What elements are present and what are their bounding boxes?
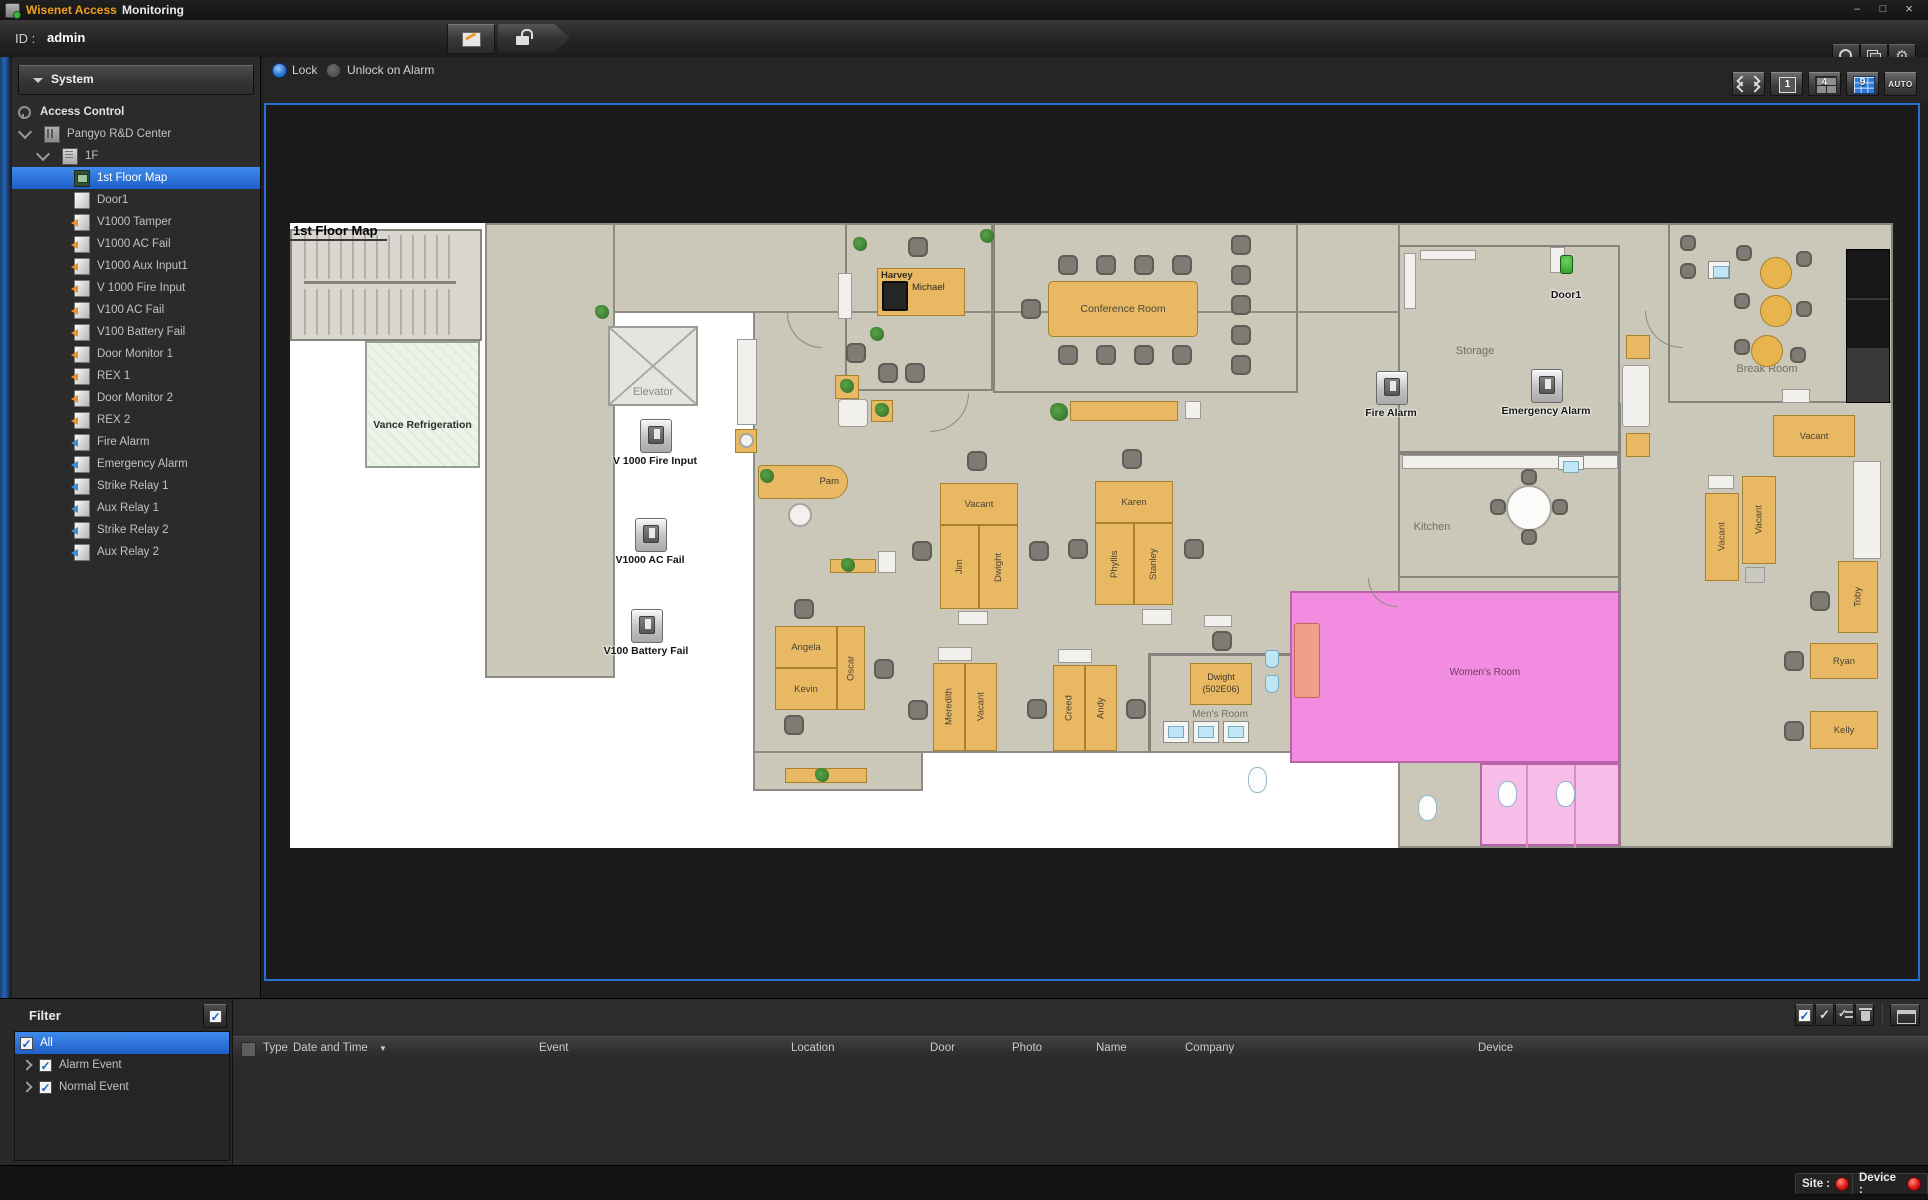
chair	[1784, 651, 1804, 671]
popup-window-icon	[1897, 1010, 1916, 1024]
quad-view-button[interactable]: 4	[1808, 72, 1841, 96]
tree-item-output[interactable]: Aux Relay 2	[12, 541, 260, 563]
toilet	[1556, 781, 1575, 807]
column-header[interactable]: Name	[1096, 1042, 1127, 1054]
tree-item-output[interactable]: Strike Relay 2	[12, 519, 260, 541]
site-status-red-dot	[1835, 1177, 1849, 1191]
desk-name: Angela	[775, 626, 837, 668]
title-brand: Wisenet Access	[26, 3, 117, 17]
chair	[1134, 345, 1154, 365]
filter-label: Normal Event	[59, 1081, 129, 1093]
tree-item-input[interactable]: V1000 Tamper	[12, 211, 260, 233]
sofa	[1622, 365, 1650, 427]
application-window: Wisenet Access Monitoring – □ × ID : adm…	[0, 0, 1928, 1200]
chair	[1096, 255, 1116, 275]
title-app: Monitoring	[122, 3, 184, 17]
fullscreen-button[interactable]	[1732, 72, 1765, 96]
chair	[1521, 529, 1537, 545]
view-9-label: 9	[1847, 76, 1878, 88]
side-table	[1626, 433, 1650, 457]
furniture	[838, 273, 852, 319]
chair	[1680, 263, 1696, 279]
delete-button[interactable]	[1855, 1004, 1874, 1026]
desk-cluster: Creed Andy	[1053, 665, 1117, 751]
sink	[1708, 261, 1730, 279]
furniture	[1142, 609, 1172, 625]
tree-item-floor[interactable]: 1F	[12, 145, 260, 167]
lock-radio[interactable]	[272, 63, 287, 78]
tree-root-access-control[interactable]: Access Control	[12, 101, 260, 123]
desk-name: Meredith	[933, 663, 965, 751]
chair	[1231, 325, 1251, 345]
chair	[1736, 245, 1752, 261]
desk-name: Vacant	[1773, 415, 1855, 457]
input-door-icon	[74, 214, 90, 231]
vending-machines	[1846, 249, 1890, 403]
sink	[1193, 721, 1219, 743]
site-status-label: Site :	[1802, 1178, 1830, 1190]
device-fire-input-icon[interactable]	[640, 419, 672, 453]
device-label: V100 Battery Fail	[581, 645, 711, 657]
toilet	[1498, 781, 1517, 807]
device-label: Fire Alarm	[1326, 407, 1456, 419]
desk-cluster: Meredith Vacant	[933, 663, 997, 751]
output-door-icon	[74, 456, 90, 473]
plant	[1050, 403, 1068, 421]
input-door-icon	[74, 236, 90, 253]
tree-item-input[interactable]: V100 Battery Fail	[12, 321, 260, 343]
tree-label: V1000 Tamper	[97, 216, 172, 228]
furniture	[958, 611, 988, 625]
desk-name: Michael	[912, 282, 945, 293]
chair	[1796, 301, 1812, 317]
monitor	[882, 281, 908, 311]
sidebar: System Access Control Pangyo R&D Center …	[12, 57, 261, 998]
column-header[interactable]: Company	[1185, 1042, 1234, 1054]
toilet	[1248, 767, 1267, 793]
column-header[interactable]: Device	[1478, 1042, 1513, 1054]
system-dropdown-label: System	[51, 72, 94, 86]
chair	[1734, 293, 1750, 309]
break-table	[1760, 257, 1792, 289]
fixture	[739, 433, 754, 448]
floor-area	[485, 223, 615, 678]
checkbox-checked[interactable]: ✓	[39, 1059, 52, 1072]
chair	[1552, 499, 1568, 515]
tree-label: Aux Relay 1	[97, 502, 159, 514]
chevron-expand-icon[interactable]	[36, 147, 50, 161]
single-view-button[interactable]: 1	[1770, 72, 1803, 96]
chair	[967, 451, 987, 471]
input-door-icon	[74, 258, 90, 275]
checkbox-checked[interactable]: ✓	[39, 1081, 52, 1094]
door-icon	[74, 192, 90, 209]
desk-name: Phyllis	[1095, 523, 1134, 605]
chair	[874, 659, 894, 679]
plant	[980, 229, 994, 243]
furniture	[1782, 389, 1810, 403]
wom-room-label: Women's Room	[1425, 667, 1545, 678]
desk-name: Karen	[1095, 481, 1173, 523]
check-all-button[interactable]: ✓	[1795, 1004, 1814, 1026]
tree-item-door1[interactable]: Door1	[12, 189, 260, 211]
chair	[1027, 699, 1047, 719]
tree-label: Door Monitor 2	[97, 392, 173, 404]
view-4-label: 4	[1809, 76, 1840, 88]
select-all-checkbox[interactable]	[241, 1042, 256, 1057]
chair	[1796, 251, 1812, 267]
desk-name: Vacant	[1705, 493, 1739, 581]
chevron-expand-icon[interactable]	[18, 125, 32, 139]
unlock-on-alarm-radio[interactable]	[326, 63, 341, 78]
tree-label: Emergency Alarm	[97, 458, 188, 470]
chair	[1231, 355, 1251, 375]
checkbox-checked[interactable]: ✓	[20, 1037, 33, 1050]
chair	[908, 237, 928, 257]
furniture	[1708, 475, 1734, 489]
filter-item-alarm[interactable]: ✓Alarm Event	[15, 1054, 229, 1076]
map-edit-button[interactable]	[447, 24, 495, 54]
column-header[interactable]: Photo	[1012, 1042, 1042, 1054]
chair	[1058, 345, 1078, 365]
chair	[1134, 255, 1154, 275]
plant	[841, 558, 855, 572]
storage-label: Storage	[1440, 345, 1510, 357]
tree-item-input[interactable]: V1000 Aux Input1	[12, 255, 260, 277]
chair	[1231, 235, 1251, 255]
acknowledge-button[interactable]: ✓	[1815, 1004, 1834, 1026]
separator	[1882, 1004, 1883, 1026]
checkbox-icon: ✓	[209, 1010, 222, 1023]
chair	[905, 363, 925, 383]
chair	[1068, 539, 1088, 559]
event-table-body[interactable]	[233, 1061, 1928, 1161]
output-door-icon	[74, 522, 90, 539]
column-header[interactable]: Date and Time	[293, 1042, 368, 1054]
chair	[1231, 295, 1251, 315]
tree-label: Strike Relay 2	[97, 524, 169, 536]
desk-name: Stanley	[1134, 523, 1173, 605]
device-battery-fail-icon[interactable]	[631, 609, 663, 643]
minimize-button[interactable]: –	[1846, 1, 1868, 17]
desk-name: Kevin	[775, 668, 837, 710]
filter-apply-button[interactable]: ✓	[203, 1004, 227, 1028]
break-table	[1760, 295, 1792, 327]
tree-label: 1st Floor Map	[97, 172, 167, 184]
trash-icon	[1861, 1011, 1870, 1021]
chair	[878, 363, 898, 383]
chair	[1122, 449, 1142, 469]
close-button[interactable]: ×	[1898, 1, 1920, 17]
device-label: Emergency Alarm	[1481, 405, 1611, 417]
tree-item-output[interactable]: Emergency Alarm	[12, 453, 260, 475]
side-table	[1626, 335, 1650, 359]
map-edit-icon	[462, 32, 481, 47]
room-label: Vance Refrigeration	[367, 419, 478, 431]
room-label: Conference Room	[1080, 303, 1165, 315]
break-table	[1751, 335, 1783, 367]
checkbox-icon: ✓	[1798, 1009, 1811, 1022]
nine-view-button[interactable]: 9	[1846, 72, 1879, 96]
device-tree: Access Control Pangyo R&D Center 1F 1st …	[12, 101, 260, 563]
tree-item-input[interactable]: REX 1	[12, 365, 260, 387]
input-door-icon	[74, 280, 90, 297]
sort-desc-icon[interactable]: ▼	[379, 1044, 387, 1053]
app-icon	[5, 3, 20, 18]
device-ac-fail-icon[interactable]	[635, 518, 667, 552]
device-fire-alarm-icon[interactable]	[1376, 371, 1408, 405]
kitchen-label: Kitchen	[1402, 521, 1462, 533]
desk-name: Vacant	[1742, 476, 1776, 564]
output-door-icon	[74, 434, 90, 451]
event-table: Type Date and Time ▼ Event Location Door…	[232, 999, 1928, 1166]
tree-item-output[interactable]: Strike Relay 1	[12, 475, 260, 497]
desk-name: (502E06)	[1191, 684, 1251, 694]
mens-room-label: Men's Room	[1165, 709, 1275, 720]
tree-label: Fire Alarm	[97, 436, 149, 448]
tree-label: 1F	[85, 150, 98, 162]
plant	[870, 327, 884, 341]
chair	[1734, 339, 1750, 355]
desk-name: Oscar	[837, 626, 865, 710]
chair	[794, 599, 814, 619]
event-panel: Filter ✓ ✓All ✓Alarm Event ✓Normal Event…	[0, 998, 1928, 1166]
chair	[784, 715, 804, 735]
floor-icon	[62, 148, 78, 165]
desk-name: Toby	[1838, 561, 1878, 633]
sofa	[1294, 623, 1320, 698]
input-door-icon	[74, 324, 90, 341]
key-icon	[18, 106, 31, 119]
output-door-icon	[74, 478, 90, 495]
chair	[1521, 469, 1537, 485]
tree-item-site[interactable]: Pangyo R&D Center	[12, 123, 260, 145]
chair	[1172, 255, 1192, 275]
chair	[1126, 699, 1146, 719]
device-label: V1000 AC Fail	[585, 554, 715, 566]
tree-label: REX 1	[97, 370, 130, 382]
toilet	[1418, 795, 1437, 821]
device-status-label: Device :	[1859, 1172, 1902, 1196]
tree-item-input[interactable]: Door Monitor 1	[12, 343, 260, 365]
input-door-icon	[74, 368, 90, 385]
event-table-header[interactable]: Type Date and Time ▼ Event Location Door…	[233, 1036, 1928, 1062]
device-label: V 1000 Fire Input	[590, 455, 720, 467]
chair	[1680, 235, 1696, 251]
device-emergency-alarm-icon[interactable]	[1531, 369, 1563, 403]
unlock-tool-button[interactable]	[498, 24, 570, 52]
status-bar: Site : Device :	[0, 1165, 1928, 1200]
input-door-icon	[74, 390, 90, 407]
desk-cluster: Vacant Jim Dwight	[940, 483, 1018, 609]
output-door-icon	[74, 544, 90, 561]
chair	[1096, 345, 1116, 365]
chair	[1184, 539, 1204, 559]
furniture	[1058, 649, 1092, 663]
tree-item-input[interactable]: Door Monitor 2	[12, 387, 260, 409]
tree-label: Pangyo R&D Center	[67, 128, 171, 140]
furniture	[938, 647, 972, 661]
device-status: Device :	[1852, 1173, 1928, 1195]
filter-label: Alarm Event	[59, 1059, 122, 1071]
shelf	[1404, 253, 1416, 309]
tree-label: V1000 Aux Input1	[97, 260, 188, 272]
title-underline	[290, 239, 387, 241]
map-toolbar: Lock Unlock on Alarm 1 4 9 AUTO	[262, 57, 1928, 103]
desk-name: Vacant	[965, 663, 997, 751]
filter-item-normal[interactable]: ✓Normal Event	[15, 1076, 229, 1098]
maximize-button[interactable]: □	[1872, 1, 1894, 17]
kitchen-table	[1506, 485, 1552, 531]
check-list-button[interactable]: ✓	[1835, 1004, 1854, 1026]
output-door-icon	[74, 500, 90, 517]
furniture	[878, 551, 896, 573]
id-value: admin	[47, 30, 85, 45]
plant	[840, 379, 854, 393]
building-icon	[44, 126, 60, 143]
conference-table: Conference Room	[1048, 281, 1198, 337]
room-elevator: Elevator	[608, 326, 698, 406]
desk-office: Harvey Michael	[877, 268, 965, 316]
tree-label: V100 AC Fail	[97, 304, 164, 316]
urinal	[1265, 650, 1279, 668]
auto-label: AUTO	[1885, 80, 1916, 89]
filter-label: All	[40, 1037, 53, 1049]
urinal	[1265, 675, 1279, 693]
stairs	[290, 229, 482, 341]
input-door-icon	[74, 412, 90, 429]
desk-name: Kelly	[1810, 711, 1878, 749]
device-status-red-dot	[1907, 1177, 1921, 1191]
tree-label: Aux Relay 2	[97, 546, 159, 558]
site-status: Site :	[1795, 1173, 1856, 1195]
plant	[760, 469, 774, 483]
desk-name: Dwight	[979, 525, 1018, 609]
plant	[815, 768, 829, 782]
input-door-icon	[74, 346, 90, 363]
wall	[1148, 653, 1151, 753]
input-door-icon	[74, 302, 90, 319]
map-viewport[interactable]: 1st Floor Map Vance Refrigeration Elevat…	[264, 103, 1920, 981]
top-toolbar: ID : admin ⚙	[0, 20, 1928, 58]
tree-label: V100 Battery Fail	[97, 326, 185, 338]
desk-cluster: Angela Kevin Oscar	[775, 626, 865, 710]
filter-title: Filter	[29, 1008, 61, 1023]
sofa	[838, 399, 868, 427]
furniture	[1185, 401, 1201, 419]
sink	[1163, 721, 1189, 743]
plant	[853, 237, 867, 251]
chair	[1490, 499, 1506, 515]
desk-name: Vacant	[940, 483, 1018, 525]
tree-item-input[interactable]: V1000 AC Fail	[12, 233, 260, 255]
desk-name: Andy	[1085, 665, 1117, 751]
door1-status-green	[1560, 255, 1573, 274]
chevron-right-icon[interactable]	[21, 1059, 32, 1070]
tree-item-floor-map[interactable]: 1st Floor Map	[12, 167, 260, 189]
view-1-label: 1	[1780, 79, 1795, 90]
sink	[1223, 721, 1249, 743]
chair	[1790, 347, 1806, 363]
id-label: ID :	[15, 31, 35, 46]
tree-label: Door1	[97, 194, 128, 206]
cabinet	[737, 339, 757, 425]
cabinet	[1853, 461, 1881, 559]
desk-name: Ryan	[1810, 643, 1878, 679]
chair	[1058, 255, 1078, 275]
tree-item-output[interactable]: Fire Alarm	[12, 431, 260, 453]
desk-office: Dwight (502E06)	[1190, 663, 1252, 705]
filter-item-all[interactable]: ✓All	[15, 1032, 229, 1054]
chair	[788, 503, 812, 527]
system-dropdown[interactable]: System	[18, 65, 254, 95]
desk-name: Harvey	[881, 270, 913, 281]
tree-label: Strike Relay 1	[97, 480, 169, 492]
desk-name: Creed	[1053, 665, 1085, 751]
plant	[875, 403, 889, 417]
chair	[846, 343, 866, 363]
tree-item-input[interactable]: REX 2	[12, 409, 260, 431]
title-bar: Wisenet Access Monitoring – □ ×	[0, 0, 1928, 21]
room-vance-refrigeration: Vance Refrigeration	[365, 341, 480, 468]
chair	[1810, 591, 1830, 611]
desk-name: Jim	[940, 525, 979, 609]
bench	[1070, 401, 1178, 421]
tree-label: REX 2	[97, 414, 130, 426]
chair	[1784, 721, 1804, 741]
column-header[interactable]: Door	[930, 1042, 955, 1054]
lock-radio-label: Lock	[292, 63, 317, 77]
tree-item-input[interactable]: V100 AC Fail	[12, 299, 260, 321]
auto-sequence-button[interactable]: AUTO	[1884, 72, 1917, 96]
chevron-right-icon[interactable]	[21, 1081, 32, 1092]
tree-label: V 1000 Fire Input	[97, 282, 185, 294]
unlock-on-alarm-label: Unlock on Alarm	[347, 63, 434, 77]
kitchen-counter	[1402, 455, 1618, 469]
column-header[interactable]: Type	[263, 1042, 288, 1054]
furniture	[1204, 615, 1232, 627]
chair	[1231, 265, 1251, 285]
open-padlock-icon	[516, 36, 529, 45]
chevron-down-icon	[33, 78, 43, 88]
plant	[595, 305, 609, 319]
column-header[interactable]: Location	[791, 1042, 834, 1054]
floor-plan-title: 1st Floor Map	[293, 223, 378, 238]
lines-icon	[1845, 1011, 1853, 1021]
chair	[1212, 631, 1232, 651]
column-header[interactable]: Event	[539, 1042, 568, 1054]
floor-plan-canvas[interactable]: 1st Floor Map Vance Refrigeration Elevat…	[290, 223, 1893, 848]
popup-view-button[interactable]	[1890, 1004, 1920, 1026]
chair	[1029, 541, 1049, 561]
chair	[1172, 345, 1192, 365]
chair	[912, 541, 932, 561]
shelf	[1420, 250, 1476, 260]
tree-label: Door Monitor 1	[97, 348, 173, 360]
map-icon	[74, 170, 90, 187]
desk-name: Pam	[819, 476, 839, 487]
desk-cluster: Karen Phyllis Stanley	[1095, 481, 1173, 605]
tree-item-output[interactable]: Aux Relay 1	[12, 497, 260, 519]
desk-name: Dwight	[1191, 672, 1251, 682]
chair	[1021, 299, 1041, 319]
tree-item-input[interactable]: V 1000 Fire Input	[12, 277, 260, 299]
sink	[1558, 456, 1584, 470]
filter-tree: ✓All ✓Alarm Event ✓Normal Event	[14, 1031, 230, 1161]
furniture	[1745, 567, 1765, 583]
device-label: Door1	[1501, 289, 1631, 301]
tree-label: Access Control	[40, 106, 124, 118]
